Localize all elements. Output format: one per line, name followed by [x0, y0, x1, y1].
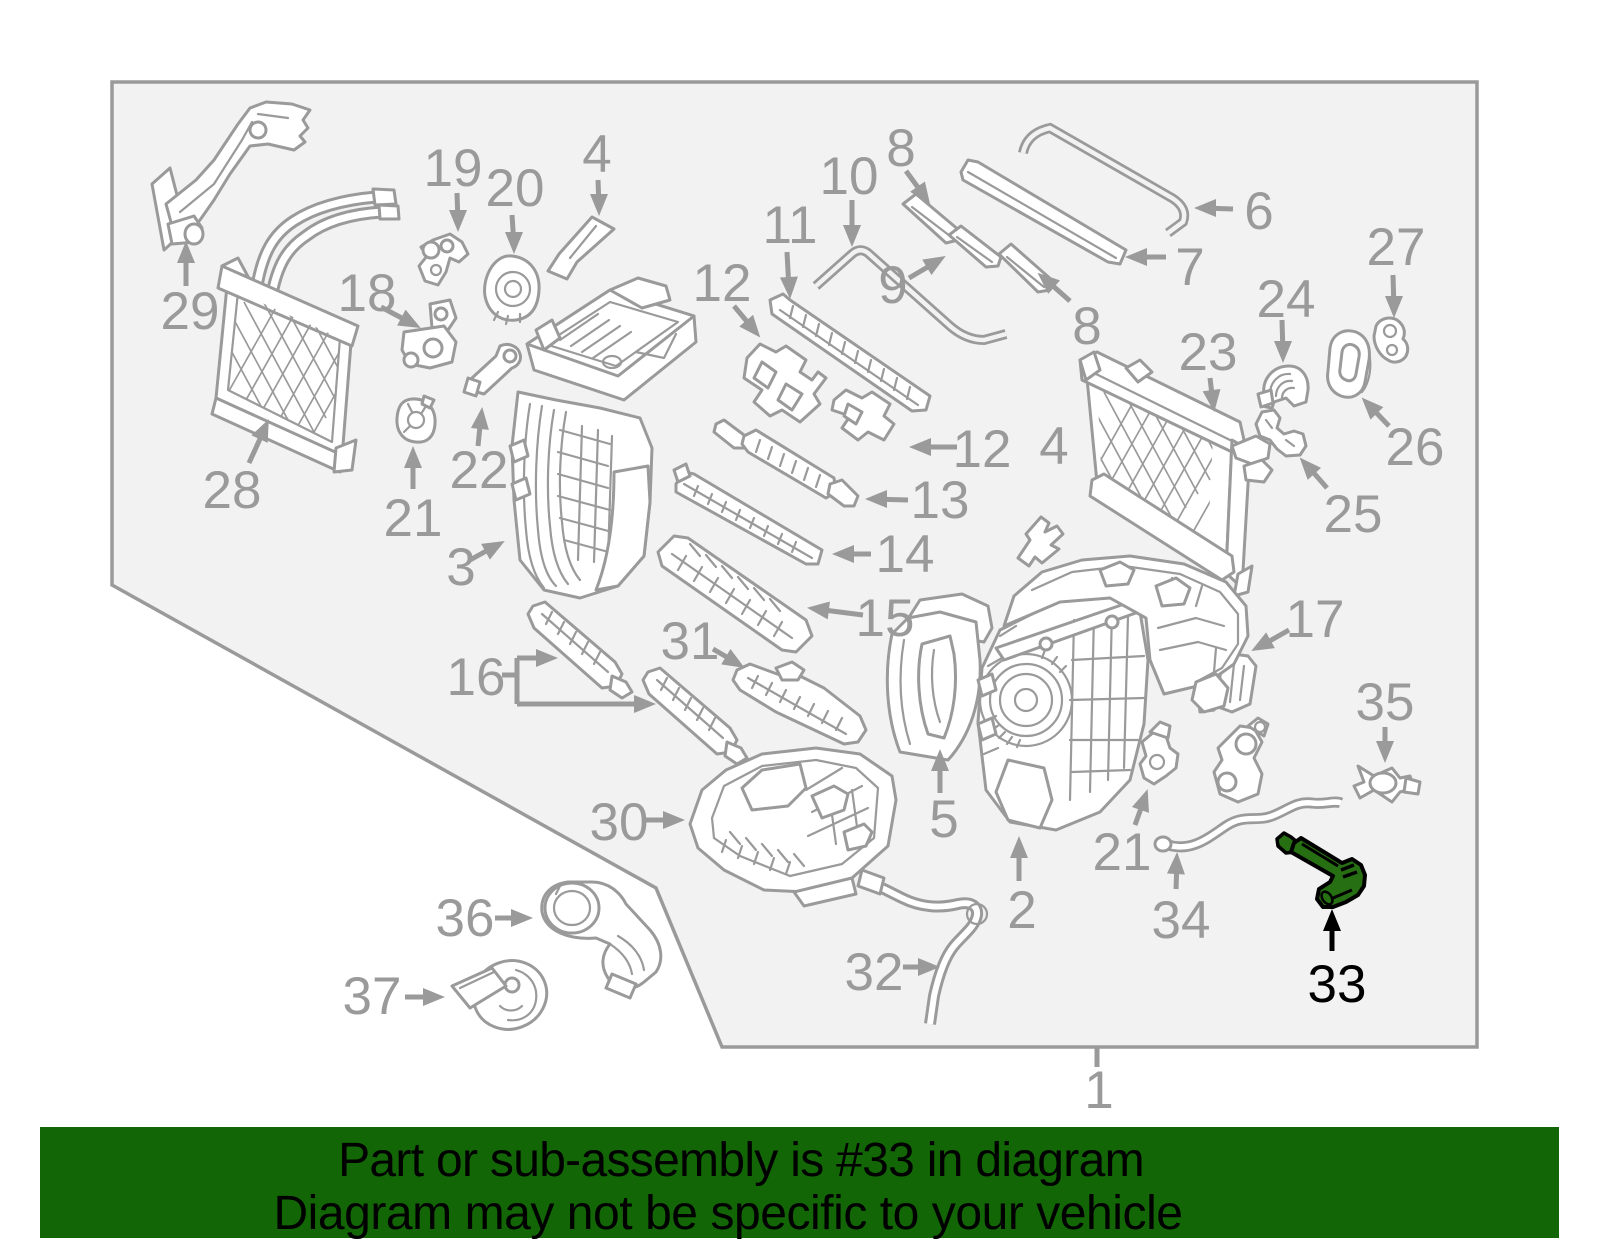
svg-text:22: 22	[450, 441, 509, 500]
svg-text:7: 7	[1175, 238, 1204, 297]
svg-text:Part or sub-assembly is #33 in: Part or sub-assembly is #33 in diagram	[338, 1134, 1144, 1187]
svg-text:18: 18	[338, 264, 397, 323]
svg-text:28: 28	[203, 461, 262, 520]
svg-text:24: 24	[1257, 270, 1316, 329]
svg-text:5: 5	[929, 790, 958, 849]
svg-text:34: 34	[1152, 891, 1211, 950]
svg-text:21: 21	[384, 489, 443, 548]
svg-text:21: 21	[1093, 823, 1152, 882]
svg-text:Diagram may not be specific to: Diagram may not be specific to your vehi…	[273, 1187, 1182, 1240]
svg-text:8: 8	[1072, 297, 1101, 356]
svg-text:11: 11	[762, 196, 817, 255]
svg-text:25: 25	[1324, 485, 1383, 544]
svg-text:26: 26	[1386, 418, 1445, 477]
svg-text:2: 2	[1007, 881, 1036, 940]
svg-text:6: 6	[1244, 182, 1273, 241]
svg-text:30: 30	[590, 793, 649, 852]
svg-text:14: 14	[876, 525, 935, 584]
svg-text:37: 37	[343, 967, 402, 1026]
svg-text:3: 3	[446, 538, 475, 597]
svg-text:20: 20	[486, 159, 545, 218]
svg-text:15: 15	[856, 589, 915, 648]
svg-text:36: 36	[436, 889, 495, 948]
svg-text:8: 8	[886, 119, 915, 178]
svg-text:12: 12	[693, 254, 752, 313]
svg-text:23: 23	[1179, 323, 1238, 382]
svg-text:13: 13	[911, 471, 970, 530]
svg-text:4: 4	[582, 125, 611, 184]
svg-text:35: 35	[1356, 673, 1415, 732]
svg-text:32: 32	[845, 943, 904, 1002]
svg-text:4: 4	[1039, 417, 1068, 476]
svg-text:16: 16	[447, 648, 506, 707]
svg-text:19: 19	[424, 139, 483, 198]
svg-text:10: 10	[820, 147, 879, 206]
svg-text:9: 9	[878, 256, 907, 315]
svg-text:17: 17	[1286, 590, 1345, 649]
svg-text:31: 31	[661, 612, 720, 671]
svg-text:27: 27	[1367, 218, 1426, 277]
svg-text:33: 33	[1308, 955, 1367, 1014]
svg-text:29: 29	[161, 282, 220, 341]
svg-text:1: 1	[1084, 1061, 1113, 1120]
